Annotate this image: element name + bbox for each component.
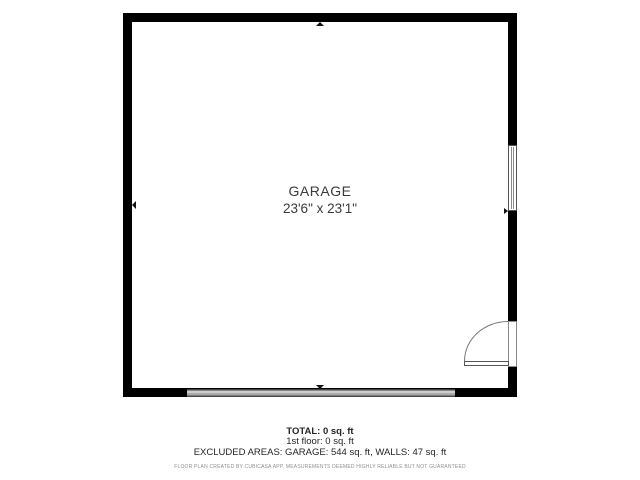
wall-marker-top-icon xyxy=(316,22,324,26)
garage-door-icon xyxy=(187,389,455,397)
wall-marker-bottom-icon xyxy=(316,385,324,389)
wall-top xyxy=(123,13,517,22)
summary-block: TOTAL: 0 sq. ft 1st floor: 0 sq. ft EXCL… xyxy=(0,427,640,470)
disclaimer-text: FLOOR PLAN CREATED BY CUBICASA APP. MEAS… xyxy=(0,464,640,470)
floorplan-canvas: GARAGE 23'6" x 23'1" TOTAL: 0 sq. ft 1st… xyxy=(0,0,640,480)
floorplan-drawing: GARAGE 23'6" x 23'1" xyxy=(123,13,517,397)
room-dimensions: 23'6" x 23'1" xyxy=(123,201,517,216)
room-name: GARAGE xyxy=(123,183,517,199)
door-opening-icon xyxy=(508,321,517,367)
door-leaf-icon xyxy=(464,361,509,366)
door-swing-arc-icon xyxy=(464,321,508,361)
room-label: GARAGE 23'6" x 23'1" xyxy=(123,183,517,216)
excluded-areas-text: EXCLUDED AREAS: GARAGE: 544 sq. ft, WALL… xyxy=(0,448,640,458)
